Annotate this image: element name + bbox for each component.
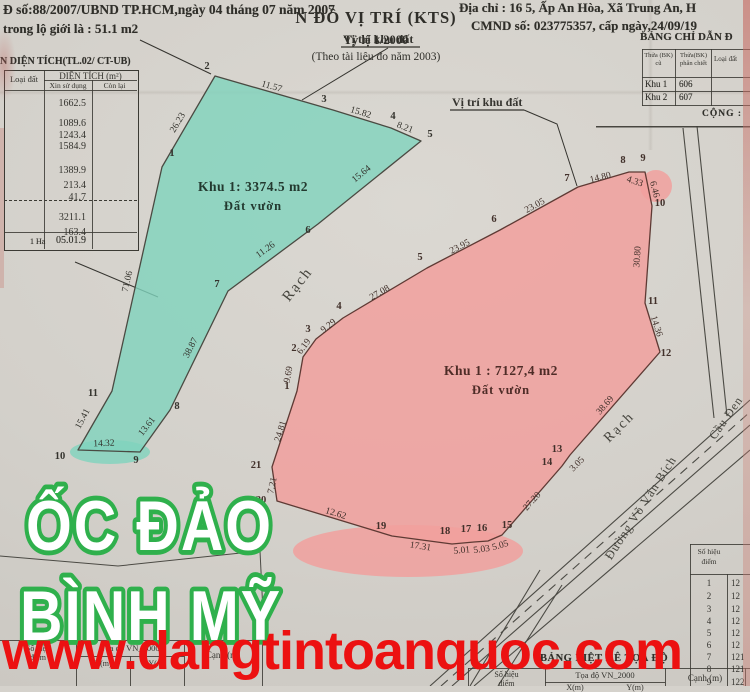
guide-row-zone: Khu 2	[645, 92, 667, 102]
point-number: 7	[690, 652, 728, 662]
table-line	[642, 105, 750, 106]
survey-leader-line	[140, 40, 211, 74]
table-line	[44, 70, 45, 249]
vertex-number: 8	[174, 401, 179, 412]
point-number: 1	[690, 578, 728, 588]
green-parcel-area-label: Khu 1: 3374.5 m2	[198, 179, 308, 194]
table-line	[690, 544, 750, 545]
table-line	[665, 668, 666, 686]
point-number: 6	[690, 640, 728, 650]
coord-col-edge: Cạnh (m)	[184, 650, 262, 660]
table-line	[727, 574, 728, 686]
scan-edge-tint	[0, 128, 4, 288]
vertex-number: 17	[461, 524, 472, 535]
point-number: 5	[690, 628, 728, 638]
edge-length-label: 5.01	[453, 545, 471, 557]
coord-col-y: Y(m)	[605, 683, 665, 692]
location-callout-leader	[302, 48, 388, 100]
page: { "header": { "left_line1": "Đ số:88/200…	[0, 0, 750, 686]
table-line	[76, 640, 77, 686]
guide-col-new: Thửa(BK) phân chiết	[677, 52, 710, 68]
table-dashed-line	[4, 200, 137, 201]
area-table: N DIỆN TÍCH(TL.02/ CT-UB) Loại đất DIỆN …	[0, 56, 140, 256]
table-line	[642, 49, 643, 106]
vertex-number: 11	[648, 296, 658, 307]
table-line	[4, 232, 137, 233]
edge-length-label: 30.80	[632, 246, 643, 268]
vertex-number: 11	[88, 388, 98, 399]
table-line	[130, 656, 131, 686]
point-number: 3	[690, 604, 728, 614]
guide-row-plot: 606	[679, 79, 693, 89]
table-line	[44, 80, 137, 81]
table-line	[690, 544, 691, 686]
vertex-number: 5	[427, 129, 432, 140]
table-line	[690, 574, 750, 575]
map-text-label: Rạch	[601, 409, 638, 446]
guide-table: BẢNG CHỈ DẪN Đ Thửa (BK) cũ Thửa(BK) phâ…	[640, 30, 750, 130]
table-line	[184, 640, 185, 686]
table-line	[545, 668, 546, 686]
coord-col-y: Y(m)	[130, 659, 184, 668]
table-line	[596, 126, 750, 127]
point-number: 8	[690, 664, 728, 674]
vertex-number: 8	[620, 155, 625, 166]
vertex-number: 21	[251, 460, 262, 471]
vertex-number: 4	[336, 301, 342, 312]
coord-table-title: BẢNG LIỆT KÊ TỌA ĐỘ	[540, 653, 668, 664]
guide-table-title: BẢNG CHỈ DẪN Đ	[640, 31, 733, 43]
vertex-number: 2	[204, 61, 209, 72]
map-text-label: Rạch	[280, 264, 317, 304]
coord-col-point: điểm	[468, 679, 545, 688]
vertex-number: 9	[133, 455, 138, 466]
coordinate-table-left: Số hiệu điểm Tọa độ VN_2000 X(m) Y(m) Cạ…	[0, 636, 264, 686]
vertex-number: 3	[321, 94, 326, 105]
road-line	[683, 128, 714, 418]
table-line	[92, 80, 93, 249]
vertex-number: 19	[376, 521, 387, 532]
map-fragment-line	[260, 551, 263, 612]
map-text-label: NE	[205, 618, 234, 633]
vertex-number: 10	[55, 451, 66, 462]
vertex-number: 7	[564, 173, 569, 184]
table-line	[468, 668, 469, 686]
edge-length-label: 9.69	[283, 365, 296, 383]
guide-row-zone: Khu 1	[645, 79, 667, 89]
vertex-number: 4	[390, 111, 396, 122]
coord-col-x: X(m)	[76, 659, 130, 668]
point-number: 4	[690, 616, 728, 626]
map-text-label: Đường Võ Văn Bích	[602, 453, 679, 562]
vertex-number: 1	[169, 148, 174, 159]
table-line	[4, 90, 137, 91]
coord-col-point: điểm	[0, 653, 76, 662]
table-line	[262, 640, 263, 686]
map-fragment-line	[0, 551, 260, 566]
scan-smudge	[0, 28, 16, 102]
coord-col-point: Số hiệu	[468, 670, 545, 679]
edge-length-label: 71.06	[121, 270, 136, 293]
vertex-number: 15	[502, 520, 513, 531]
table-line	[642, 77, 750, 78]
vertex-number: 7	[214, 279, 219, 290]
vertex-number: 18	[440, 526, 451, 537]
scan-edge-tint	[743, 0, 750, 686]
area-footer-unit: 1 Ha	[30, 237, 45, 246]
coord-col-x: X(m)	[545, 683, 605, 692]
decree-number-line: Đ số:88/2007/UBND TP.HCM,ngày 04 tháng 0…	[3, 2, 335, 18]
area-table-title: N DIỆN TÍCH(TL.02/ CT-UB)	[0, 56, 131, 67]
vertex-number: 10	[655, 198, 666, 209]
vertex-number: 9	[640, 153, 645, 164]
edge-length-label: 15.41	[74, 407, 93, 431]
points-header: điểm	[690, 557, 728, 566]
pink-parcel-polygon	[272, 172, 660, 544]
point-number: 2	[690, 591, 728, 601]
table-line	[0, 640, 262, 641]
table-line	[642, 49, 750, 50]
edge-length-label: 3.05	[568, 455, 587, 474]
vertex-number: 16	[477, 523, 488, 534]
location-callout-label: Vị trí khu đất	[343, 32, 413, 46]
vertex-number: 6	[491, 214, 496, 225]
pink-parcel-landuse-label: Đất vườn	[472, 383, 530, 397]
table-line	[711, 49, 712, 106]
coord-col-system: Tọa độ VN_2000	[76, 643, 184, 653]
guide-total-label: CỘNG :	[702, 109, 742, 119]
road-boundary-line: trong lộ giới là : 51.1 m2	[3, 21, 138, 37]
area-footer-value: 05.01.9	[56, 235, 86, 246]
point-list-table: Số hiệu điểm 112212312412512612712181219…	[688, 540, 750, 686]
location-callout-label: Vị trí khu đất	[452, 95, 522, 109]
table-line	[545, 682, 665, 683]
guide-col-old: Thửa (BK) cũ	[643, 52, 674, 68]
pink-parcel-area-label: Khu 1 : 7127,4 m2	[444, 363, 558, 378]
vertex-number: 5	[417, 252, 422, 263]
points-header: Số hiệu	[690, 547, 728, 556]
coord-col-point: Số hiệu	[0, 644, 76, 653]
road-line	[697, 126, 727, 416]
green-parcel-landuse-label: Đất vườn	[224, 199, 282, 213]
table-line	[675, 49, 676, 106]
vertex-number: 12	[661, 348, 672, 359]
coord-col-system: Tọa độ VN_2000	[545, 670, 665, 680]
vertex-number: 14	[542, 457, 553, 468]
vertex-number: 6	[305, 225, 310, 236]
vertex-number: 20	[256, 495, 267, 506]
address-line: Địa chỉ : 16 5, Ấp An Hòa, Xã Trung An, …	[459, 0, 696, 16]
vertex-number: 13	[552, 444, 563, 455]
guide-row-plot: 607	[679, 92, 693, 102]
edge-length-label: 14.32	[93, 439, 115, 450]
vertex-number: 3	[305, 324, 310, 335]
area-table-frame	[4, 70, 139, 251]
